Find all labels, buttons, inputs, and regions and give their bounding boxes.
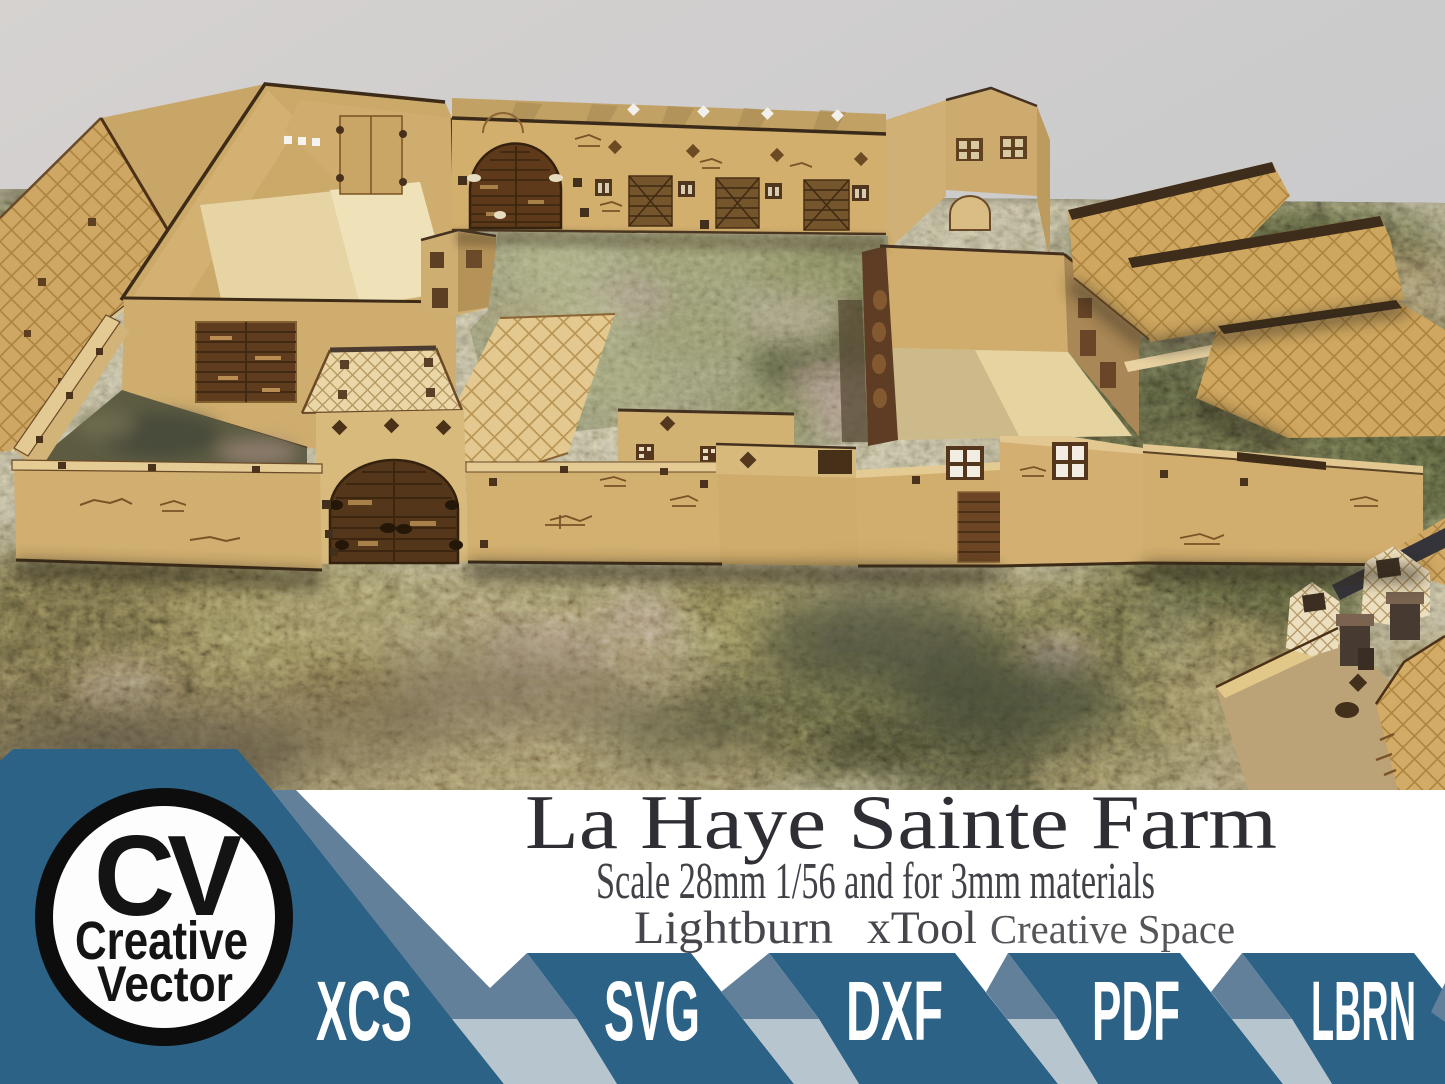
svg-text:Lightburn: Lightburn	[634, 902, 833, 954]
svg-text:xTool: xTool	[867, 902, 977, 954]
svg-text:XCS: XCS	[316, 964, 412, 1058]
svg-text:Vector: Vector	[97, 956, 233, 1012]
svg-text:Creative Space: Creative Space	[990, 906, 1235, 952]
svg-text:DXF: DXF	[846, 964, 943, 1058]
svg-text:PDF: PDF	[1092, 964, 1180, 1058]
svg-text:SVG: SVG	[604, 964, 700, 1058]
svg-text:LBRN: LBRN	[1311, 964, 1416, 1058]
